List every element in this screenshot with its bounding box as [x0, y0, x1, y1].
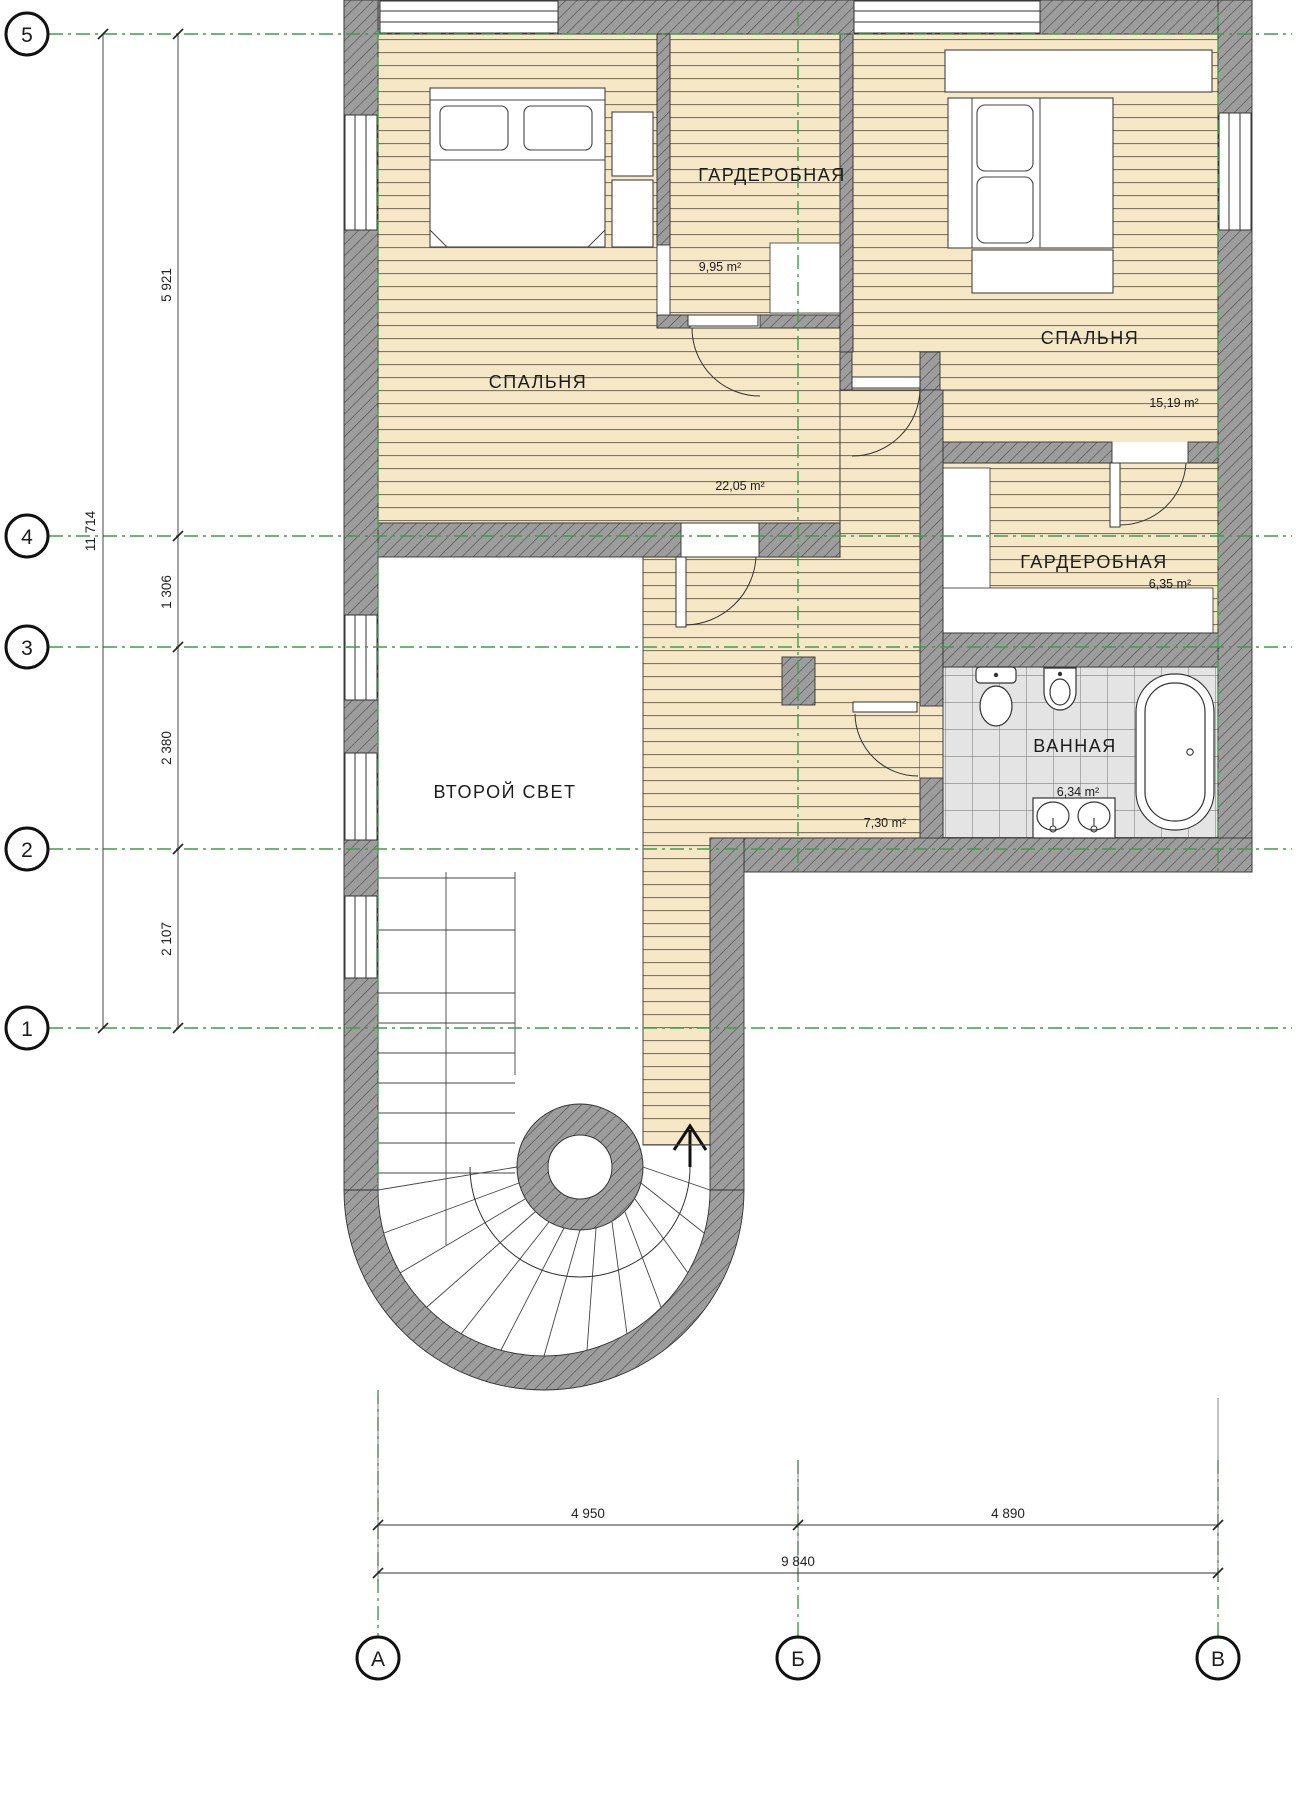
axis-bubble-3-label: 3 — [21, 637, 33, 660]
axis-bubble-B-label: Б — [791, 1648, 805, 1671]
window-left-bedroom — [345, 115, 377, 230]
wall-stair-tower-right — [710, 838, 744, 1190]
nightstand — [612, 180, 653, 247]
wall-bottom-right — [744, 838, 1252, 872]
dresser — [945, 50, 1212, 92]
double-washbasin-icon — [1033, 798, 1115, 838]
bedroom-right-label: СПАЛЬНЯ — [1041, 328, 1139, 348]
wall-wardrobe-right-top — [1188, 442, 1218, 463]
axis-bubble-5-label: 5 — [21, 24, 33, 47]
dim-v-seg-3: 2 107 — [159, 922, 174, 956]
axis-bubble-2-label: 2 — [21, 839, 33, 862]
wall-wardrobe-top-bottom — [760, 315, 840, 328]
void-label: ВТОРОЙ СВЕТ — [433, 781, 576, 802]
bathroom-label: ВАННАЯ — [1033, 736, 1116, 756]
axis-bubble-V-label: В — [1211, 1648, 1225, 1671]
bidet-icon — [1044, 668, 1076, 710]
dim-ticks — [98, 29, 183, 1033]
wall-wardrobe-right-top — [943, 442, 1112, 463]
bedroom-right-area: 15,19 m² — [1149, 396, 1198, 410]
wall-bedroom-right-bottom — [920, 352, 940, 390]
nightstand — [612, 112, 653, 176]
partition-bedroom-wardrobe — [657, 34, 670, 245]
window-void-1 — [345, 615, 377, 700]
window-top-right — [854, 1, 1040, 33]
dim-v-seg-0: 5 921 — [159, 268, 174, 302]
wall-wardrobe-top-bottom — [657, 315, 690, 328]
wardrobe-right-area: 6,35 m² — [1149, 577, 1191, 591]
newel-hole — [548, 1135, 612, 1199]
window-top-left — [380, 1, 558, 33]
bathtub-icon — [1136, 674, 1214, 830]
wall-bedroom-right-west — [840, 34, 853, 352]
bedroom-left-label: СПАЛЬНЯ — [489, 372, 587, 392]
floor-plan-drawing: 11 714 5 921 1 306 2 380 2 107 4 950 4 8… — [0, 0, 1300, 1796]
wall-bedroom-right-bottom — [840, 352, 852, 390]
bath-doorway-floor — [920, 706, 943, 778]
closet-unit — [943, 588, 1213, 633]
axis-bubble-4-label: 4 — [21, 526, 33, 549]
wall-bedroom-left-bottom — [759, 523, 840, 557]
dim-h-seg-0: 4 950 — [571, 1506, 605, 1521]
bed-left — [430, 88, 653, 247]
wall-bedroom-left-bottom — [378, 523, 681, 557]
closet-unit — [770, 243, 840, 313]
bedroom-left-area: 22,05 m² — [715, 479, 764, 493]
wardrobe-right-label: ГАРДЕРОБНАЯ — [1020, 552, 1167, 572]
dim-v-seg-1: 1 306 — [159, 575, 174, 609]
dim-v-seg-2: 2 380 — [159, 731, 174, 765]
dim-horizontal-total: 9 840 — [781, 1554, 815, 1569]
wall-bathroom-left — [920, 778, 943, 838]
wall-stair-tower-round — [344, 1190, 744, 1390]
wardrobe-top-area: 9,95 m² — [699, 260, 741, 274]
wall-bathroom-top — [943, 633, 1218, 667]
hall-area: 7,30 m² — [864, 816, 906, 830]
window-right-bedroom — [1219, 113, 1251, 230]
dim-h-seg-1: 4 890 — [991, 1506, 1025, 1521]
axis-bubble-A-label: А — [371, 1648, 385, 1671]
bed-bench — [972, 250, 1113, 293]
window-void-2 — [345, 753, 377, 840]
wardrobe-top-label: ГАРДЕРОБНАЯ — [698, 165, 845, 185]
wall-bathroom-left — [920, 390, 943, 706]
dim-vertical-total: 11 714 — [83, 510, 98, 551]
axis-bubble-1-label: 1 — [21, 1018, 33, 1041]
window-void-3 — [345, 896, 377, 978]
bathroom-area: 6,34 m² — [1057, 785, 1099, 799]
